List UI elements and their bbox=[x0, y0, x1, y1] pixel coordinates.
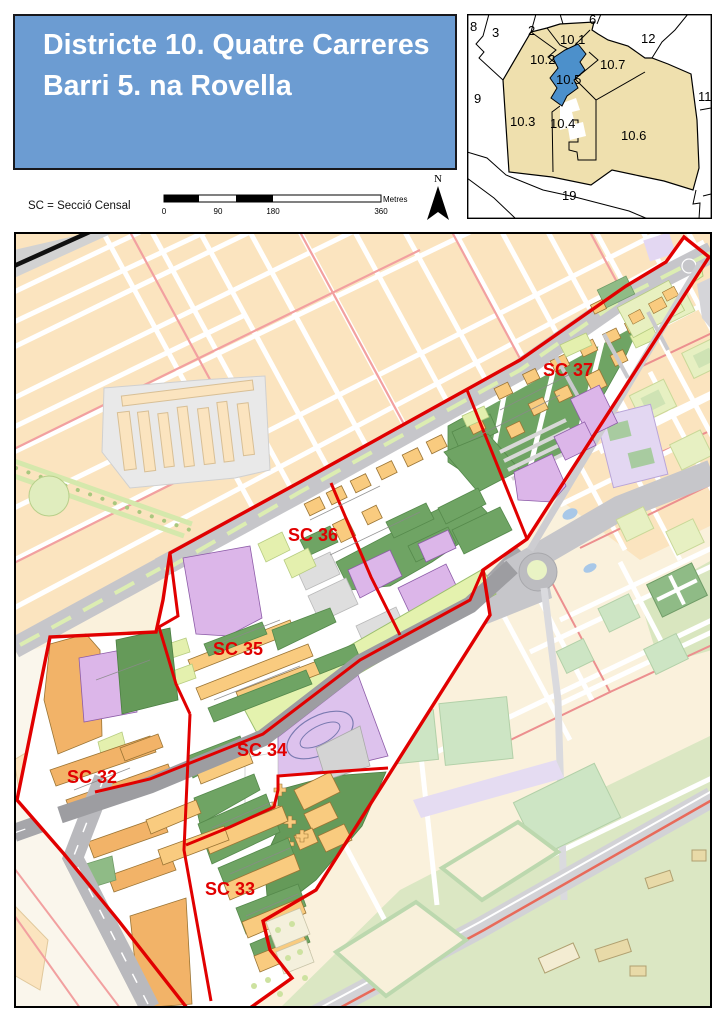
svg-text:N: N bbox=[434, 173, 442, 185]
svg-text:12: 12 bbox=[641, 31, 655, 46]
svg-text:10.7: 10.7 bbox=[600, 57, 625, 72]
svg-text:2: 2 bbox=[528, 23, 535, 38]
svg-text:19: 19 bbox=[562, 188, 576, 203]
svg-text:SC 37: SC 37 bbox=[543, 360, 593, 380]
svg-text:SC 32: SC 32 bbox=[67, 767, 117, 787]
svg-text:Metres: Metres bbox=[383, 195, 407, 204]
svg-text:0: 0 bbox=[162, 207, 167, 216]
svg-text:10.6: 10.6 bbox=[621, 128, 646, 143]
svg-text:90: 90 bbox=[214, 207, 223, 216]
svg-text:180: 180 bbox=[266, 207, 280, 216]
svg-text:SC 34: SC 34 bbox=[237, 740, 287, 760]
svg-text:SC 35: SC 35 bbox=[213, 639, 263, 659]
svg-text:3: 3 bbox=[492, 25, 499, 40]
svg-text:8: 8 bbox=[470, 19, 477, 34]
svg-text:9: 9 bbox=[474, 91, 481, 106]
svg-text:SC 36: SC 36 bbox=[288, 525, 338, 545]
svg-text:11: 11 bbox=[698, 89, 712, 104]
svg-text:10.3: 10.3 bbox=[510, 114, 535, 129]
svg-text:10.1: 10.1 bbox=[560, 32, 585, 47]
svg-text:6: 6 bbox=[589, 14, 596, 27]
svg-text:360: 360 bbox=[374, 207, 388, 216]
svg-text:10.4: 10.4 bbox=[550, 116, 575, 131]
svg-text:SC 33: SC 33 bbox=[205, 879, 255, 899]
svg-text:10.2: 10.2 bbox=[530, 52, 555, 67]
svg-text:10.5: 10.5 bbox=[556, 72, 581, 87]
